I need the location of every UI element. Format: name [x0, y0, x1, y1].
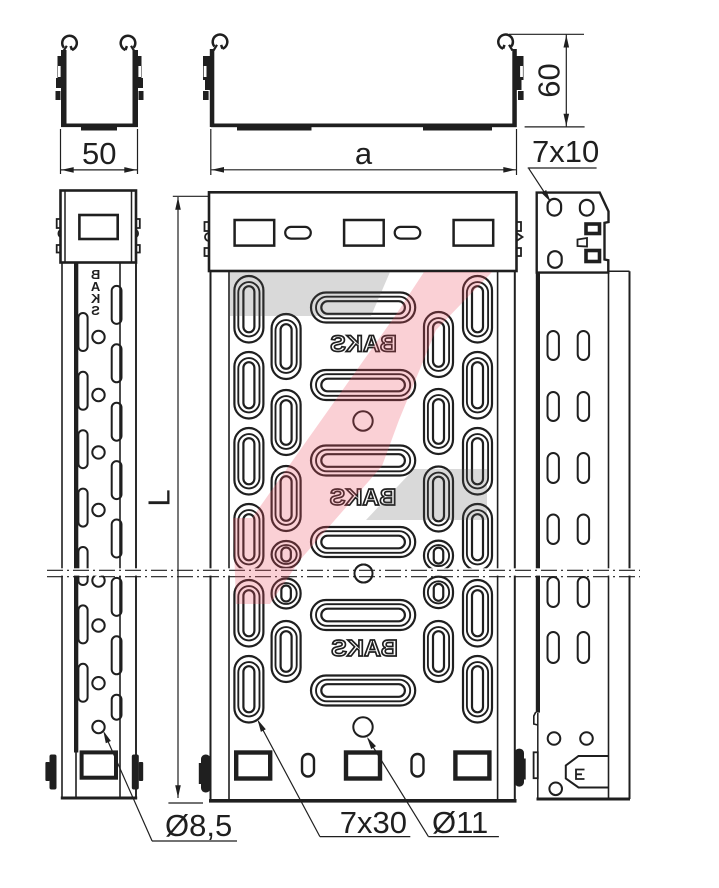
svg-text:60: 60 — [532, 63, 567, 97]
svg-text:7x10: 7x10 — [532, 134, 599, 169]
svg-text:BAKS: BAKS — [331, 635, 398, 661]
svg-text:Ø11: Ø11 — [432, 805, 488, 840]
svg-text:S: S — [91, 303, 100, 318]
svg-text:7x30: 7x30 — [340, 805, 407, 840]
svg-text:50: 50 — [82, 136, 116, 171]
svg-text:Ø8,5: Ø8,5 — [165, 808, 232, 843]
svg-text:L: L — [142, 489, 177, 506]
svg-text:a: a — [355, 136, 373, 171]
